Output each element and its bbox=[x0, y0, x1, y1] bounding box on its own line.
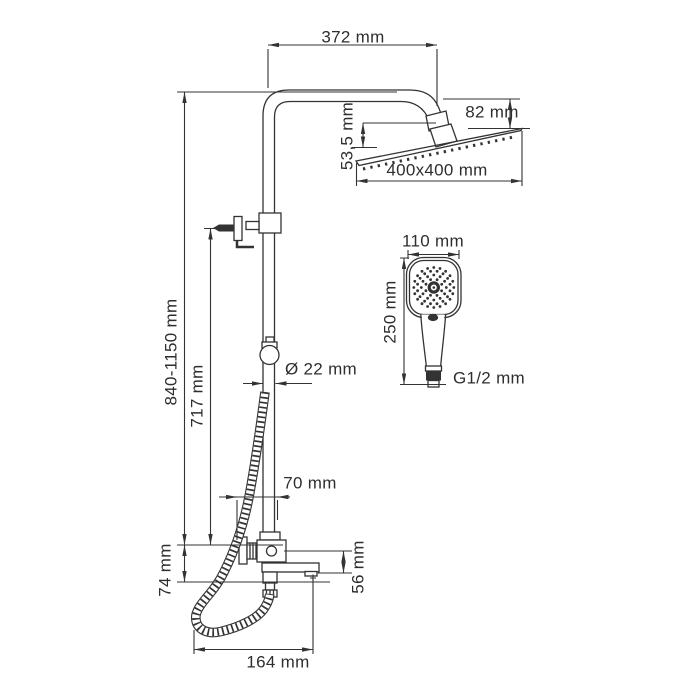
mixer-body bbox=[239, 532, 319, 597]
dim-overhead-size-label: 400x400 mm bbox=[386, 162, 487, 179]
dim-head-tilt-label: 53,5 mm bbox=[339, 102, 356, 170]
dim-head-offset-label: 82 mm bbox=[465, 104, 518, 121]
dim-wall-offset-label: 70 mm bbox=[283, 475, 336, 492]
shower-system-dimension-diagram: 372 mm 82 mm 53,5 mm 400x400 mm 110 mm 2… bbox=[0, 0, 700, 700]
dim-handshower-length-label: 250 mm bbox=[382, 280, 399, 343]
hand-shower-thread-end bbox=[428, 381, 439, 388]
dim-thread-label: G1/2 mm bbox=[453, 370, 525, 387]
dim-bracket-height-label: 717 mm bbox=[189, 364, 206, 427]
dim-column-height-label: 840-1150 mm bbox=[163, 299, 180, 406]
dim-mixer-drop-label: 74 mm bbox=[157, 543, 174, 596]
dim-spout-height-label: 56 mm bbox=[350, 540, 367, 593]
shower-hose bbox=[196, 392, 270, 632]
hand-shower-button bbox=[428, 314, 438, 321]
dim-handshower-width-label: 110 mm bbox=[402, 233, 464, 250]
dim-pipe-diameter-label: Ø 22 mm bbox=[285, 361, 357, 378]
dim-spout-reach-label: 164 mm bbox=[246, 654, 309, 671]
dim-top-width-label: 372 mm bbox=[321, 29, 384, 46]
wall-bracket bbox=[213, 213, 281, 247]
